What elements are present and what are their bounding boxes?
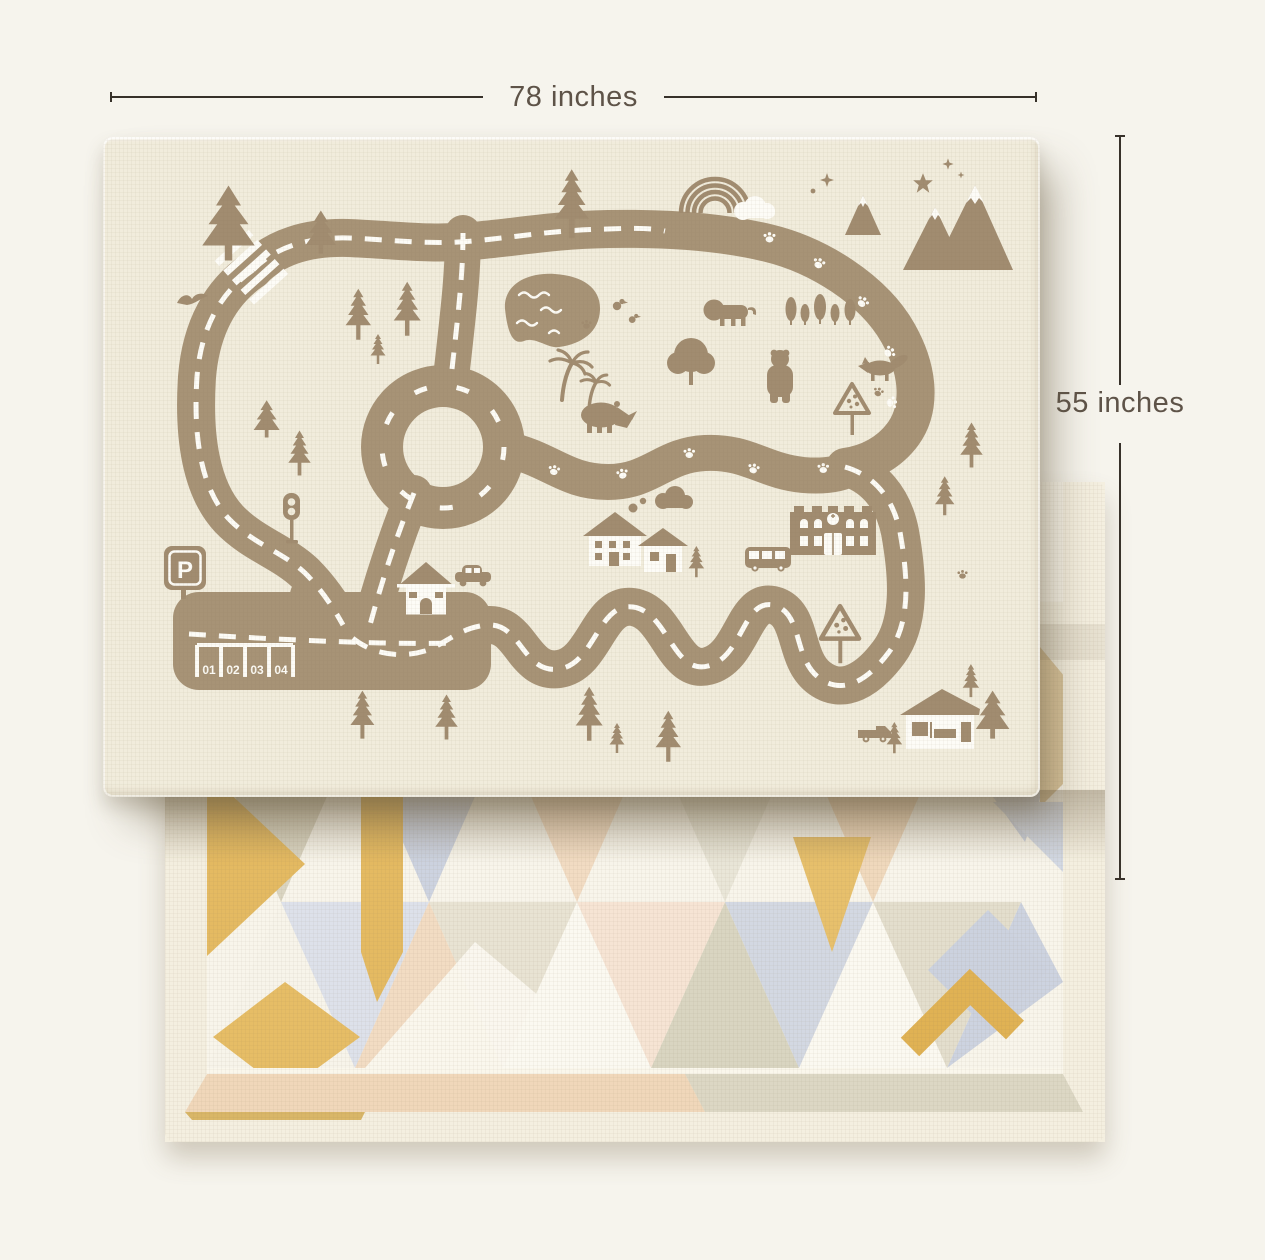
parking-spot-label: 04 — [274, 663, 288, 677]
pond-icon — [505, 274, 600, 347]
mountain-icon-small — [845, 195, 881, 235]
truck-icon — [858, 726, 891, 742]
car-icon — [455, 565, 491, 586]
middle-road — [505, 449, 851, 482]
height-dimension-line-top — [1119, 135, 1121, 385]
parking-spot-label: 03 — [250, 663, 264, 677]
parking-spot-label: 02 — [226, 663, 240, 677]
house-icon-2 — [638, 528, 688, 572]
mountain-icon-large — [903, 185, 1013, 270]
warning-sign-icon-2 — [821, 606, 859, 663]
cast-shadow — [165, 790, 1105, 862]
rhino-icon — [581, 401, 637, 433]
school-icon — [790, 506, 876, 555]
lion-icon — [704, 300, 757, 327]
width-dimension-line-right — [664, 96, 1037, 98]
modern-house-icon — [900, 689, 980, 749]
width-dimension: 78 inches — [110, 84, 1037, 110]
star-icons — [811, 158, 965, 193]
house-icon-1 — [583, 512, 647, 566]
duck-icons — [613, 299, 641, 323]
width-dimension-label: 78 inches — [509, 81, 638, 114]
product-photo: 78 inches 55 inches — [0, 0, 1265, 1260]
height-dimension: 55 inches — [1119, 135, 1121, 880]
bus-icon — [745, 547, 791, 572]
mat-edge-separator — [207, 1068, 1063, 1074]
warning-sign-icon-1 — [835, 384, 869, 435]
parking-sign-label: P — [177, 557, 193, 584]
parking-spot-label: 01 — [202, 663, 216, 677]
traffic-light-icon — [283, 493, 300, 544]
parking-sign: P — [164, 546, 206, 599]
road-mat: 01 02 03 04 P — [103, 137, 1040, 797]
bear-icon — [767, 350, 793, 403]
width-dimension-line-left — [110, 96, 483, 98]
height-dimension-label: 55 inches — [1055, 387, 1185, 420]
palm-tree-icons — [550, 350, 610, 408]
height-dimension-line-bottom — [1119, 443, 1121, 880]
road-illustration: 01 02 03 04 P — [103, 137, 1040, 797]
round-tree-icon — [667, 338, 715, 385]
